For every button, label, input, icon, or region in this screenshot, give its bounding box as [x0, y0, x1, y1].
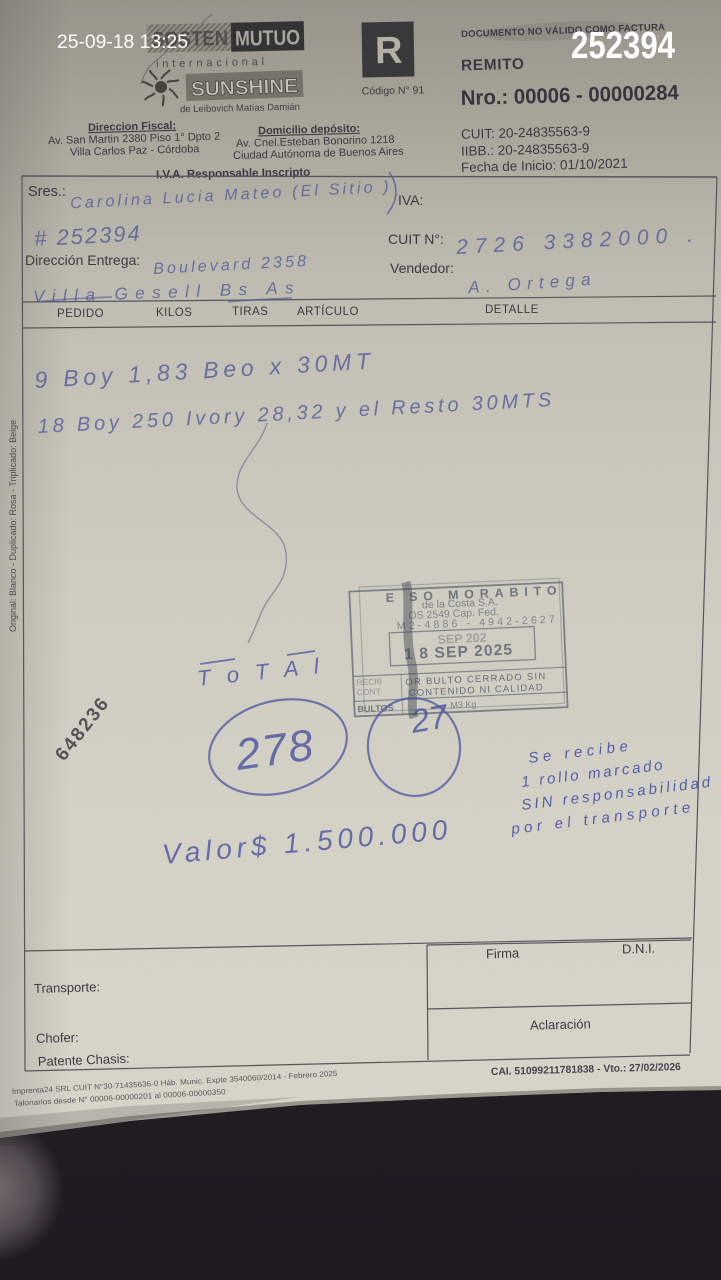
svg-text:Dirección Entrega:: Dirección Entrega:	[25, 252, 140, 268]
svg-text:Chofer:: Chofer:	[36, 1030, 79, 1046]
svg-text:IVA:: IVA:	[398, 192, 423, 208]
svg-text:DETALLE: DETALLE	[485, 304, 539, 316]
svg-text:CONT: CONT	[357, 686, 382, 697]
svg-text:ARTÍCULO: ARTÍCULO	[297, 305, 359, 318]
svg-text:Aclaración: Aclaración	[530, 1016, 591, 1033]
svg-text:Código N° 91: Código N° 91	[362, 84, 425, 97]
svg-text:MUTUO: MUTUO	[235, 26, 300, 50]
svg-text:TIRAS: TIRAS	[232, 306, 268, 318]
svg-text:PEDIDO: PEDIDO	[57, 308, 104, 320]
svg-text:CUIT N°:: CUIT N°:	[388, 231, 444, 247]
svg-text:25-09-18 13:25: 25-09-18 13:25	[57, 32, 188, 53]
svg-text:internacional: internacional	[156, 56, 268, 70]
svg-text:M3 Kg: M3 Kg	[450, 699, 476, 710]
svg-text:Firma: Firma	[486, 945, 520, 961]
svg-text:KILOS: KILOS	[156, 307, 192, 319]
svg-text:Patente Chasis:: Patente Chasis:	[38, 1051, 130, 1069]
svg-text:Original: Blanco - Duplicado:: Original: Blanco - Duplicado: Rosa - Tri…	[8, 420, 18, 632]
svg-text:R: R	[375, 30, 403, 72]
svg-text:Vendedor:: Vendedor:	[390, 260, 454, 276]
svg-text:Transporte:: Transporte:	[34, 979, 100, 996]
svg-text:SUNSHINE: SUNSHINE	[191, 75, 299, 101]
svg-text:252394: 252394	[571, 25, 675, 67]
svg-text:D.N.I.: D.N.I.	[622, 941, 656, 957]
svg-text:Sres.:: Sres.:	[28, 184, 66, 200]
svg-text:REMITO: REMITO	[461, 56, 525, 75]
